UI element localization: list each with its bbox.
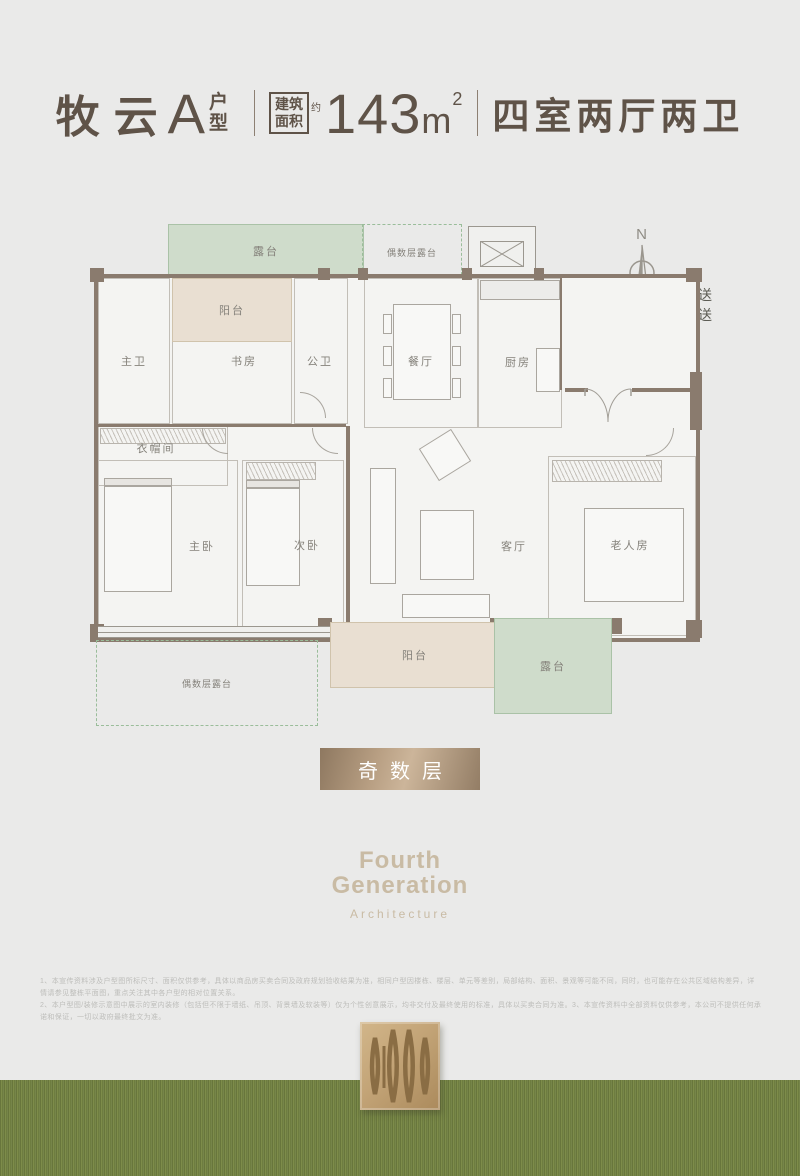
plan-type-letter: A [168, 81, 205, 146]
label-master-bath: 主卫 [121, 353, 147, 369]
window-band [98, 626, 336, 638]
elder-room-closet [552, 460, 662, 482]
zone-balcony-top: 阳台 [172, 278, 292, 342]
wall-segment [632, 388, 696, 392]
label-master-bedroom: 主卧 [189, 538, 215, 554]
zone-balcony-bottom: 阳台 [330, 622, 500, 688]
dining-chair [383, 378, 392, 398]
floor-badge: 奇数层 [320, 748, 480, 790]
wall-pier [686, 620, 702, 638]
wall-pier [318, 268, 330, 280]
plan-type-suffix-top: 户 [209, 92, 228, 113]
room-master-bath [98, 278, 170, 424]
label-cloakroom: 衣帽间 [137, 440, 176, 456]
coffee-table [420, 510, 474, 580]
brand-logo-icon [360, 1022, 440, 1110]
floor-badge-label: 奇数层 [346, 755, 454, 784]
label-public-bath: 公卫 [307, 353, 333, 369]
label-living-room: 客厅 [501, 538, 527, 554]
zone-terrace-top: 露台 [168, 224, 364, 278]
branding-line3: Architecture [0, 907, 800, 921]
second-bed [246, 488, 300, 586]
wall-pier [686, 268, 702, 282]
branding-block: Fourth Generation Architecture [0, 848, 800, 921]
page-title: 牧云 A 户 型 建筑 面积 约 143m2 四室两厅两卫 [0, 78, 800, 148]
wall-pier [462, 268, 472, 280]
equipment-platform-icon [480, 241, 524, 267]
dining-chair [452, 378, 461, 398]
poster: 牧云 A 户 型 建筑 面积 约 143m2 四室两厅两卫 N 全赠送 半赠送 [0, 0, 800, 1176]
wall-segment [94, 424, 346, 427]
label-dining: 餐厅 [408, 353, 434, 369]
dining-chair [383, 314, 392, 334]
wall-pier [90, 268, 104, 282]
dining-chair [452, 314, 461, 334]
brand-logo [360, 1022, 440, 1110]
title-divider [254, 90, 255, 136]
label-elder-room: 老人房 [611, 537, 650, 553]
zone-terrace-bottom-label: 露台 [540, 658, 566, 674]
plan-name: 牧云 [56, 81, 172, 145]
label-kitchen: 厨房 [505, 354, 531, 370]
kitchen-counter [480, 280, 560, 300]
area-label-line1: 建筑 [275, 96, 303, 112]
dining-chair [383, 346, 392, 366]
sofa-small [402, 594, 490, 618]
zone-terrace-top-label: 露台 [253, 243, 279, 259]
zone-balcony-top-label: 阳台 [219, 302, 245, 318]
wall-segment [346, 426, 350, 638]
branding-line1: Fourth [0, 848, 800, 873]
dining-chair [452, 346, 461, 366]
zone-balcony-bottom-label: 阳台 [402, 647, 428, 663]
wall-pier [534, 268, 544, 280]
wall-pier [690, 372, 702, 430]
area-unit: m [421, 100, 452, 141]
zone-even-terrace-bottom-label: 偶数层露台 [182, 677, 232, 690]
zone-terrace-bottom: 露台 [494, 618, 612, 714]
disclaimer: 1、本宣传资料涉及户型图所标尺寸、面积仅供参考，具体以商品房买卖合同及政府规划验… [40, 976, 762, 1024]
wall-pier [358, 268, 368, 280]
entry-double-door [584, 388, 632, 426]
area-label-line2: 面积 [275, 113, 303, 129]
label-study: 书房 [231, 353, 257, 369]
area-superscript: 2 [452, 89, 463, 109]
elder-bed [584, 508, 684, 602]
zone-even-terrace-top: 偶数层露台 [362, 224, 462, 280]
area-value: 143m2 [325, 81, 463, 146]
bed-headboard [104, 478, 172, 486]
floorplan: 露台 偶数层露台 阳台 [90, 222, 710, 734]
bed-headboard [246, 480, 300, 488]
wall-segment [560, 278, 562, 390]
sofa [370, 468, 396, 584]
area-label-box: 建筑 面积 [269, 92, 309, 134]
branding-line2: Generation [0, 873, 800, 898]
title-divider-2 [477, 90, 478, 136]
second-bedroom-closet [246, 462, 316, 480]
dining-table [393, 304, 451, 400]
zone-even-terrace-top-label: 偶数层露台 [387, 246, 437, 259]
master-bed [104, 486, 172, 592]
disclaimer-line2: 2、本户型图/装修示意图中展示的室内装修（包括但不限于墙纸、吊顶、背景墙及软装等… [40, 1000, 762, 1024]
area-approx: 约 [311, 99, 321, 114]
zone-even-terrace-bottom: 偶数层露台 [96, 640, 318, 726]
disclaimer-line1: 1、本宣传资料涉及户型图所标尺寸、面积仅供参考，具体以商品房买卖合同及政府规划验… [40, 976, 762, 1000]
rooms-summary: 四室两厅两卫 [492, 86, 744, 140]
area-number: 143 [325, 82, 421, 145]
label-second-bedroom: 次卧 [294, 537, 320, 553]
plan-type-suffix-bottom: 型 [209, 113, 228, 134]
plan-type-suffix: 户 型 [209, 92, 228, 135]
kitchen-stove [536, 348, 560, 392]
